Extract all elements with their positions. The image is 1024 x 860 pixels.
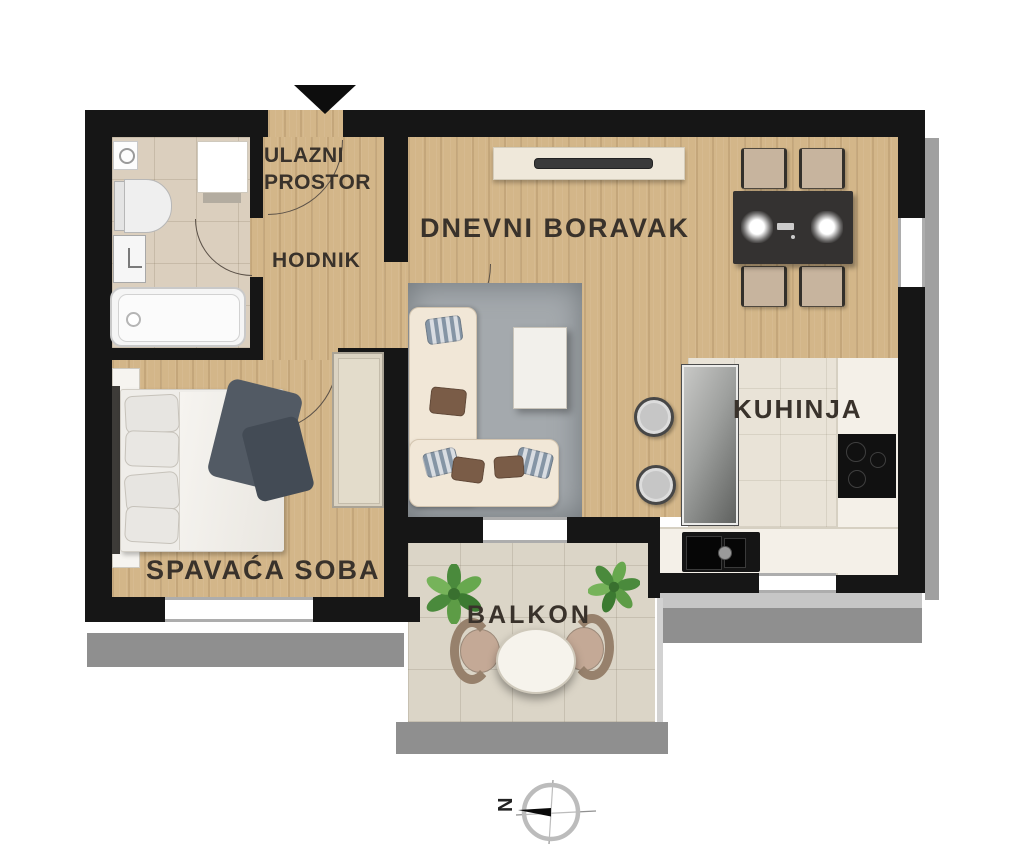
- wall-bedroom-bottom-right: [313, 597, 420, 622]
- wall-bedroom-right: [384, 350, 408, 622]
- dining-chair-seat: [741, 266, 787, 307]
- room-label-entry-line1: ULAZNI: [264, 142, 371, 169]
- kitchen-tall-cabinet: [682, 365, 738, 525]
- wall-kitchen-bottom-right: [836, 573, 925, 593]
- wall-living-bottom-left: [408, 517, 483, 543]
- building-shadow-kitchen: [657, 608, 922, 643]
- wall-right-upper: [898, 110, 925, 218]
- building-shadow-bedroom: [87, 633, 404, 667]
- plant: [588, 560, 640, 614]
- washbasin: [197, 141, 248, 193]
- room-label-bedroom: SPAVAĆA SOBA: [146, 555, 381, 586]
- table-item: [791, 235, 795, 239]
- entrance-arrow-icon: [294, 85, 356, 114]
- cooktop: [838, 434, 896, 498]
- tv: [534, 158, 653, 169]
- washing-machine-icon: [128, 248, 142, 268]
- plate: [811, 211, 843, 243]
- burner: [848, 470, 866, 488]
- wardrobe-inner: [338, 358, 380, 504]
- dining-chair: [741, 148, 787, 189]
- room-label-kitchen: KUHINJA: [733, 394, 863, 425]
- dining-table: [733, 191, 853, 264]
- window-bedroom: [165, 597, 313, 622]
- compass: N: [498, 773, 616, 860]
- balcony-rail-right: [657, 598, 663, 722]
- stool: [634, 397, 674, 437]
- dining-chair: [799, 148, 845, 189]
- wall-top-left: [85, 110, 268, 137]
- plant-leaves: [588, 560, 640, 614]
- balcony-glass-door: [483, 517, 567, 543]
- room-label-hallway: HODNIK: [272, 249, 361, 273]
- room-label-balcony: BALKON: [467, 601, 592, 630]
- room-label-entry-line2: PROSTOR: [264, 169, 371, 196]
- wall-living-bottom-right: [567, 517, 660, 543]
- bed-pillow: [124, 394, 180, 435]
- room-label-living: DNEVNI BORAVAK: [420, 213, 690, 244]
- bed-pillow: [124, 430, 179, 468]
- burner: [846, 442, 866, 462]
- washing-machine: [113, 235, 146, 283]
- kitchen-sink: [682, 532, 760, 572]
- washbasin-shadow: [203, 193, 241, 203]
- sofa-pillow: [493, 455, 524, 479]
- dining-chair: [741, 266, 787, 307]
- bathtub-drain: [126, 312, 141, 327]
- wall-hall-living-upper: [384, 137, 408, 262]
- floor-drain: [113, 141, 138, 170]
- hall-living-door-gap: [384, 262, 408, 350]
- wall-kitchen-bottom-left: [660, 573, 759, 593]
- dining-chair: [799, 266, 845, 307]
- dining-chair-seat: [799, 148, 845, 189]
- dining-chair-seat: [741, 148, 787, 189]
- wardrobe: [332, 352, 384, 508]
- north-label: N: [498, 798, 517, 812]
- room-label-entry: ULAZNI PROSTOR: [264, 142, 371, 196]
- dining-chair-seat: [799, 266, 845, 307]
- plate: [741, 211, 773, 243]
- window-kitchen: [759, 573, 836, 593]
- toilet-bowl: [124, 179, 172, 233]
- wall-kitchen-stub: [648, 517, 660, 598]
- sink-basin: [686, 536, 722, 570]
- building-shadow-kitchen-light: [660, 593, 922, 608]
- entry-threshold: [268, 110, 343, 137]
- wall-top-right: [343, 110, 925, 137]
- table-runner: [777, 223, 794, 230]
- bed-headboard: [112, 386, 120, 554]
- bed-pillow: [124, 506, 180, 545]
- building-shadow-balcony: [396, 722, 668, 754]
- wall-bedroom-bottom-left: [85, 597, 165, 622]
- wall-bathroom-upper: [250, 137, 263, 218]
- double-bed: [120, 389, 284, 552]
- sofa-pillow: [424, 315, 463, 346]
- burner: [870, 452, 886, 468]
- bistro-table: [496, 628, 576, 694]
- drain-circle: [119, 148, 135, 164]
- tv-cabinet: [493, 147, 685, 180]
- building-shadow-right: [925, 138, 939, 600]
- sofa-pillow: [429, 386, 468, 417]
- toilet: [114, 179, 170, 231]
- wall-bathroom-bottom: [85, 348, 263, 360]
- stool: [636, 465, 676, 505]
- coffee-table: [513, 327, 567, 409]
- wall-left: [85, 110, 112, 622]
- sofa-pillow: [450, 456, 485, 484]
- floor-plan-canvas: ULAZNI PROSTOR HODNIK DNEVNI BORAVAK KUH…: [0, 0, 1024, 860]
- wall-right-lower: [898, 287, 925, 593]
- faucet: [718, 546, 732, 560]
- bathtub: [110, 287, 246, 347]
- wall-bathroom-lower: [250, 277, 263, 348]
- window-living-right: [898, 218, 925, 287]
